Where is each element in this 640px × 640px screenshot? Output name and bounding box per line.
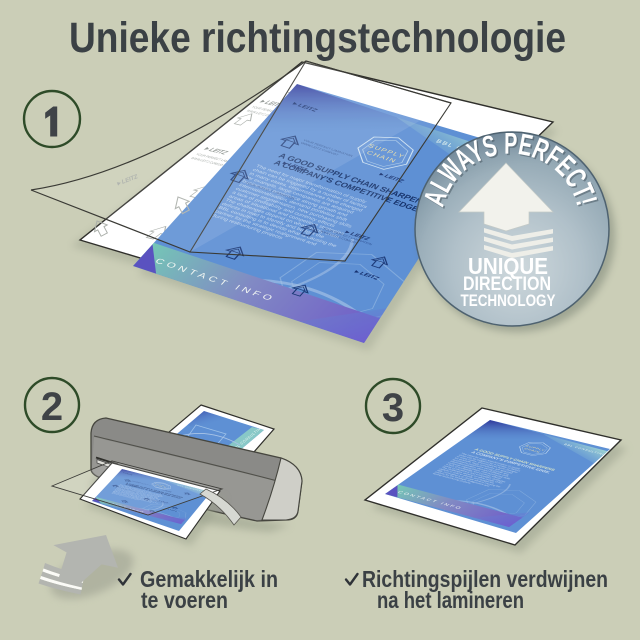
svg-text:te voeren: te voeren	[141, 587, 228, 613]
svg-text:na het lamineren: na het lamineren	[377, 587, 524, 613]
svg-text:Unieke richtingstechnologie: Unieke richtingstechnologie	[69, 14, 566, 62]
svg-text:3: 3	[382, 386, 404, 430]
svg-text:2: 2	[41, 385, 63, 429]
svg-text:TECHNOLOGY: TECHNOLOGY	[461, 291, 557, 310]
